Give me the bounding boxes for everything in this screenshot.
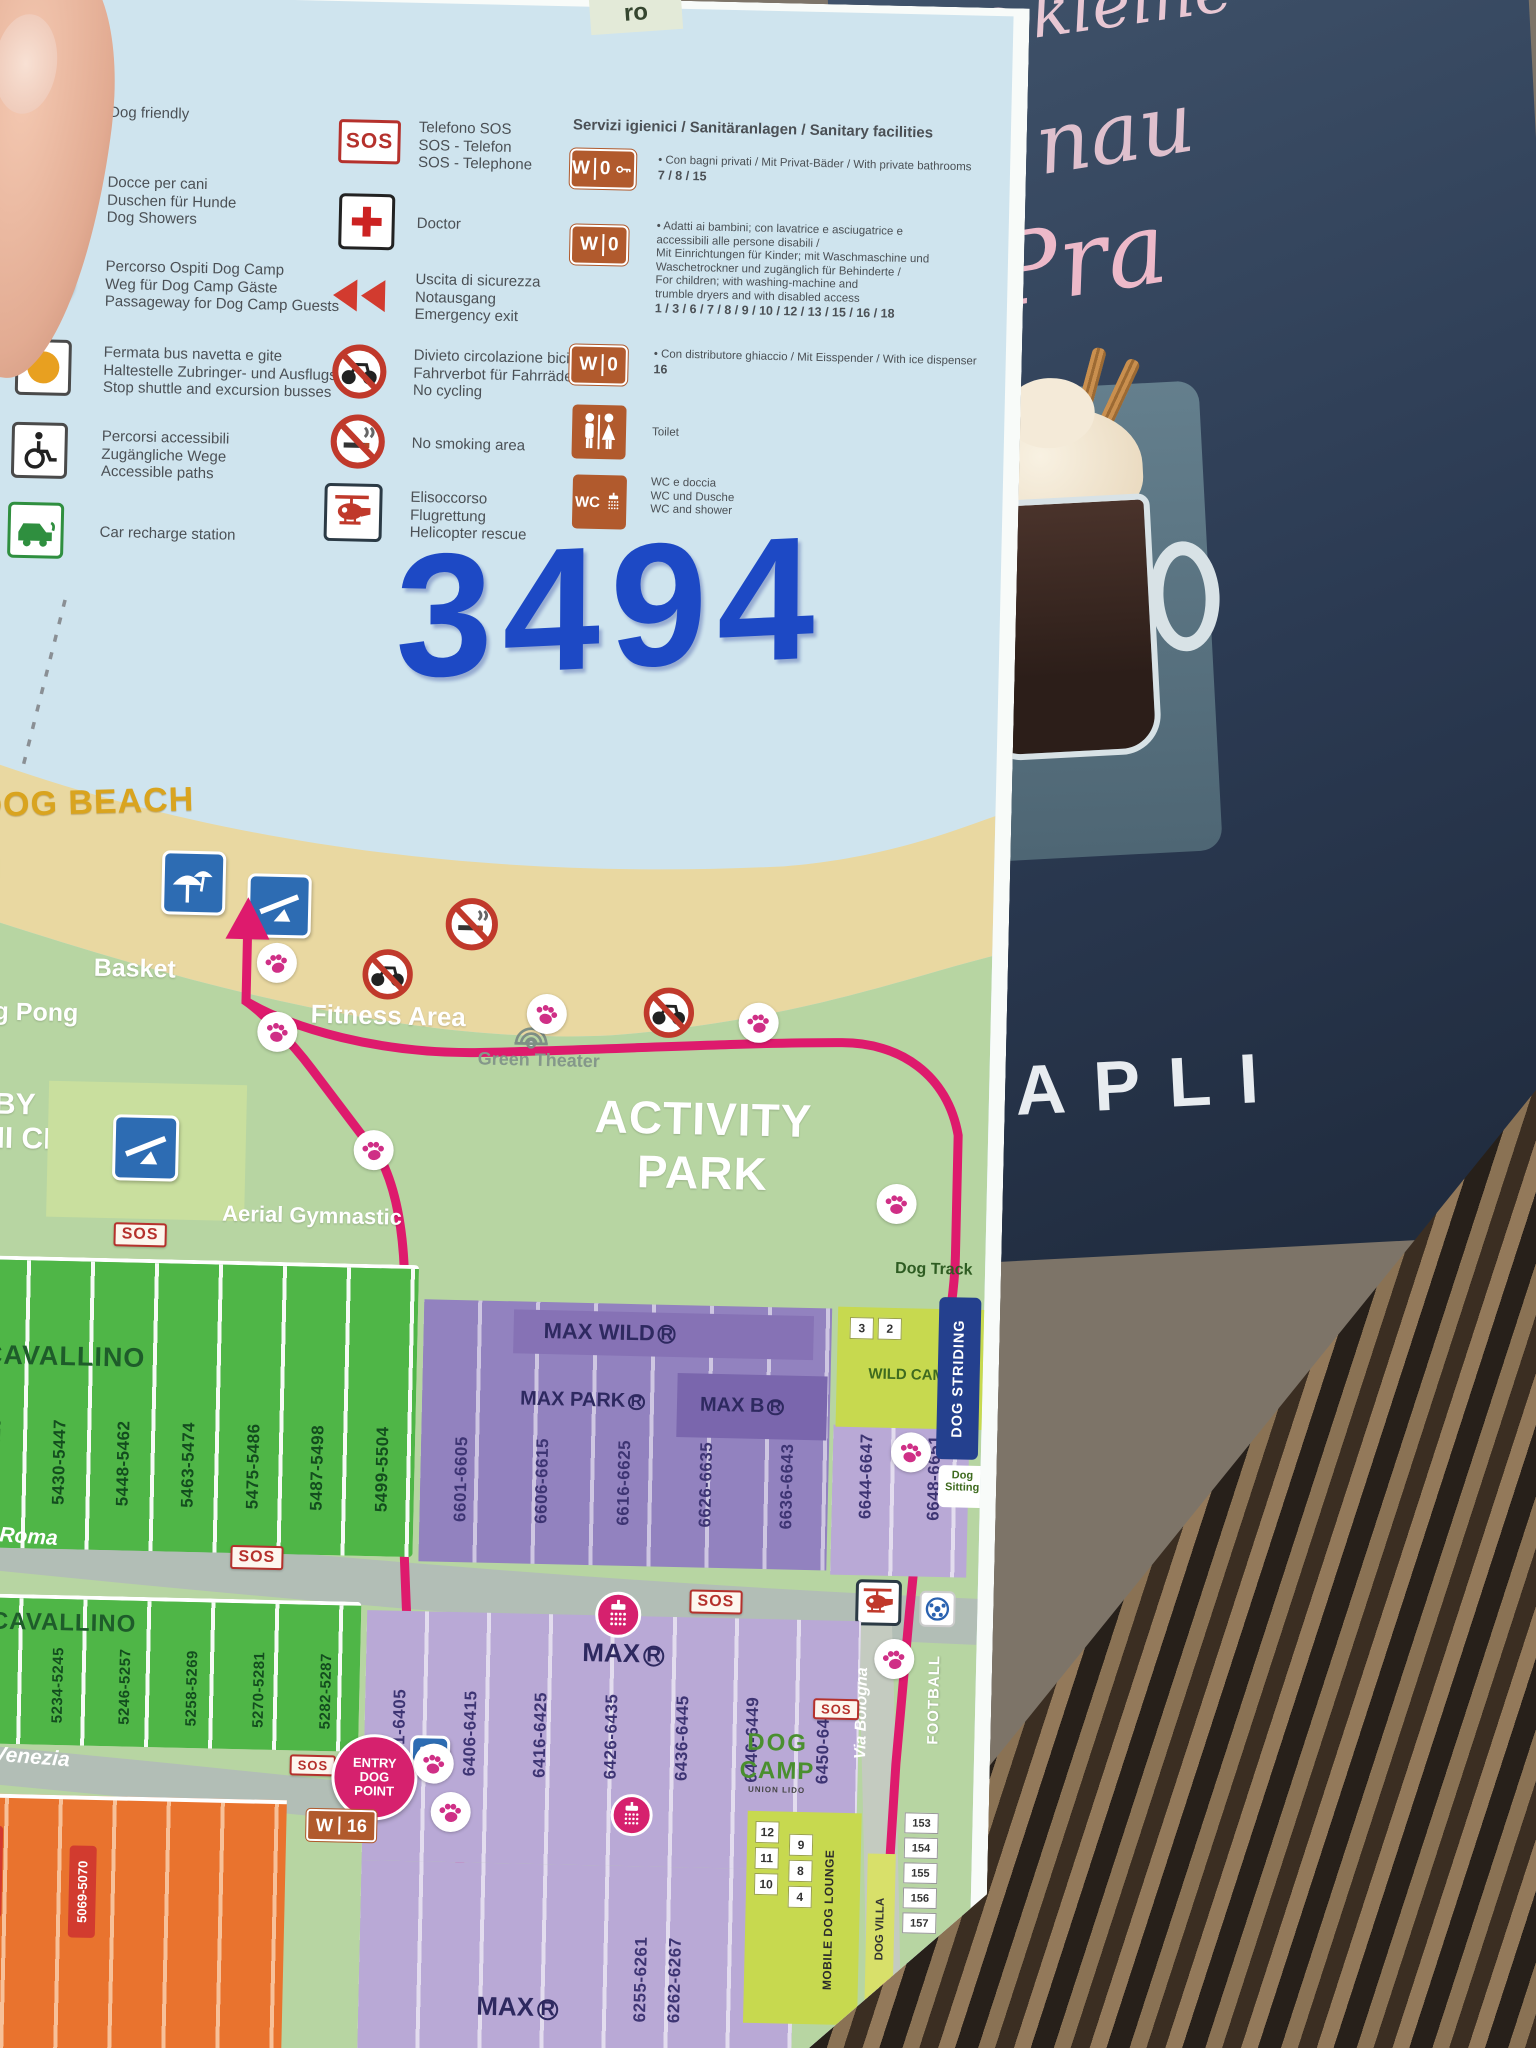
shower-glyph: [616, 1800, 647, 1831]
pitch-number: 5487-5498: [307, 1425, 329, 1511]
dog-shower-map-icon: [595, 1591, 642, 1638]
pitch-number: 6626-6635: [695, 1442, 717, 1528]
cavallino-label: CAVALLINO: [0, 1339, 146, 1374]
camp-box-number: 9: [789, 1834, 813, 1857]
max-b-label: MAX BR: [700, 1394, 784, 1419]
villa-number: 154: [904, 1837, 938, 1859]
villa-number: 156: [903, 1887, 937, 1909]
orange-pitch-block: 5059-5060 5069-5070: [0, 1793, 287, 2048]
pitch-number: 5234-5245: [49, 1647, 68, 1724]
no-cycling-sign: [361, 948, 414, 1001]
registered-mark: R: [643, 1645, 665, 1667]
dog-camp-logo: DOG CAMP UNION LIDO: [739, 1729, 815, 1796]
sos-badge: SOS: [289, 1754, 336, 1776]
max-label: MAXR: [476, 1991, 559, 2024]
football-wrap: FOOTBALL: [924, 1633, 944, 1767]
ping-pong-label: Ping Pong: [0, 997, 79, 1029]
soccer-icon: [919, 1591, 956, 1628]
soccer-ball-glyph: [923, 1595, 952, 1624]
cavallino-south-block: CAVALLINO 5222-52335234-52455246-5257525…: [0, 1593, 361, 1752]
camp-box-number: 10: [754, 1873, 778, 1896]
wild-camp-boxes: 32: [847, 1315, 904, 1342]
pitch-number: 5069-5070: [74, 1860, 90, 1922]
dog-camp-grid: 121110 984 MOBILE DOG LOUNGE: [743, 1811, 862, 2026]
aerial-gymnastic-label: Aerial Gymnastic: [222, 1201, 402, 1231]
shower-glyph: [601, 1597, 636, 1632]
pitch-number: 5430-5447: [48, 1419, 70, 1505]
helicopter-glyph: [859, 1583, 898, 1622]
football-label: FOOTBALL: [924, 1655, 943, 1745]
dog-sitting-box: Dog Sitting: [938, 1465, 987, 1508]
max-south-block: 6255-6261 6262-6267 MAXR: [357, 1860, 796, 2048]
sos-badge: SOS: [113, 1222, 166, 1247]
max-wild-label: MAX WILDR: [543, 1318, 676, 1347]
villa-number: 155: [903, 1862, 937, 1884]
pitch-number: 5258-5269: [183, 1650, 202, 1727]
pitch-number: 6606-6615: [532, 1438, 554, 1524]
pitch-number: 5463-5474: [177, 1422, 199, 1508]
pitch-number-row: 5222-52335234-52455246-52575258-52695270…: [0, 1645, 360, 1750]
pitch-number: 6644-6647: [855, 1433, 877, 1519]
pitch-number: 6636-6643: [776, 1443, 798, 1529]
dog-track-label: Dog Track: [895, 1260, 973, 1280]
villa-number: 157: [902, 1912, 936, 1934]
green-theater-label: Green Theater: [478, 1048, 600, 1072]
max-label: MAXR: [582, 1637, 665, 1670]
aerial-gymnastic-icon: [112, 1114, 179, 1181]
pitch-number: 6406-6415: [459, 1690, 481, 1776]
max-wild-block: MAX WILDR MAX PARKR MAX BR 6601-66056606…: [418, 1299, 832, 1570]
camp-box-number: 12: [755, 1821, 779, 1844]
mobile-dog-lounge-label: MOBILE DOG LOUNGE: [820, 1850, 837, 1991]
registered-mark: R: [767, 1399, 784, 1416]
seesaw-glyph: [119, 1121, 172, 1174]
pitch-number: 5499-5504: [371, 1426, 393, 1512]
book-script-word: nau: [1028, 73, 1200, 195]
activity-park-label-2: PARK: [557, 1142, 848, 1203]
registered-mark: R: [537, 1999, 559, 2021]
paper-map: Dog friendly Docce per caniDuschen für H…: [0, 0, 1030, 2048]
pitch-number: 6416-6425: [530, 1692, 552, 1778]
baby-mini-club-label-1: BABY: [0, 1086, 36, 1122]
fitness-area-label: Fitness Area: [310, 999, 466, 1034]
basket-label: Basket: [93, 954, 176, 985]
book-title-letters: APLI: [1013, 1037, 1288, 1131]
registered-mark: R: [628, 1394, 645, 1411]
max-park-label: MAX PARKR: [520, 1387, 645, 1413]
pitch-number-row: 5412-54295430-54475448-54625463-54745475…: [0, 1417, 415, 1555]
cavallino-label: CAVALLINO: [0, 1608, 137, 1639]
pitch-number: 6616-6625: [613, 1440, 635, 1526]
registered-mark: R: [658, 1325, 676, 1343]
helicopter-pad-icon: [855, 1579, 902, 1626]
camp-box-number: 3: [850, 1317, 874, 1340]
no-cycling-sign: [642, 986, 695, 1039]
route-paw-badge: [876, 1184, 917, 1225]
pitch-number: 5270-5281: [250, 1651, 269, 1728]
pitch-number: 6426-6435: [600, 1693, 622, 1779]
route-arrow: [225, 897, 270, 940]
pitch-number: 6436-6445: [671, 1695, 693, 1781]
pitch-number: 6262-6267: [664, 1895, 687, 2023]
activity-park-label-1: ACTIVITY: [558, 1088, 849, 1149]
villa-numbers: 153154155156157: [900, 1810, 941, 1936]
camp-box-number: 4: [788, 1886, 812, 1909]
w16-badge: W16: [306, 1809, 377, 1843]
pitch-number: 5448-5462: [113, 1420, 135, 1506]
pitch-number: 5475-5486: [242, 1423, 264, 1509]
pitch-number-row: 6601-66056606-66156616-66256626-66356636…: [418, 1435, 829, 1566]
villa-number: 153: [904, 1812, 938, 1834]
dog-striding-label: DOG STRIDING: [949, 1319, 968, 1438]
camp-box-number: 2: [878, 1318, 902, 1341]
map-artwork: Dog friendly Docce per caniDuschen für H…: [0, 0, 1014, 2048]
no-smoking-sign: [444, 897, 499, 952]
pitch-number: 5246-5257: [116, 1648, 135, 1725]
pitch-number: 6601-6605: [450, 1436, 472, 1522]
sos-badge: SOS: [230, 1545, 283, 1570]
mug-handle: [1147, 540, 1223, 654]
dog-striding-banner: DOG STRIDING: [936, 1297, 982, 1460]
pitch-number: 6255-6261: [630, 1872, 653, 2022]
pitch-number: 5412-5429: [0, 1417, 6, 1503]
sos-badge: SOS: [813, 1698, 860, 1720]
camp-box-number: 8: [788, 1860, 812, 1883]
fingernail: [0, 11, 63, 118]
cavallino-north-block: CAVALLINO 5412-54295430-54475448-5462546…: [0, 1255, 419, 1557]
camp-box-number: 11: [754, 1847, 778, 1870]
pitch-number: 5282-5287: [317, 1653, 336, 1730]
sos-badge: SOS: [689, 1589, 742, 1614]
dog-villa-label: DOG VILLA: [873, 1897, 886, 1960]
